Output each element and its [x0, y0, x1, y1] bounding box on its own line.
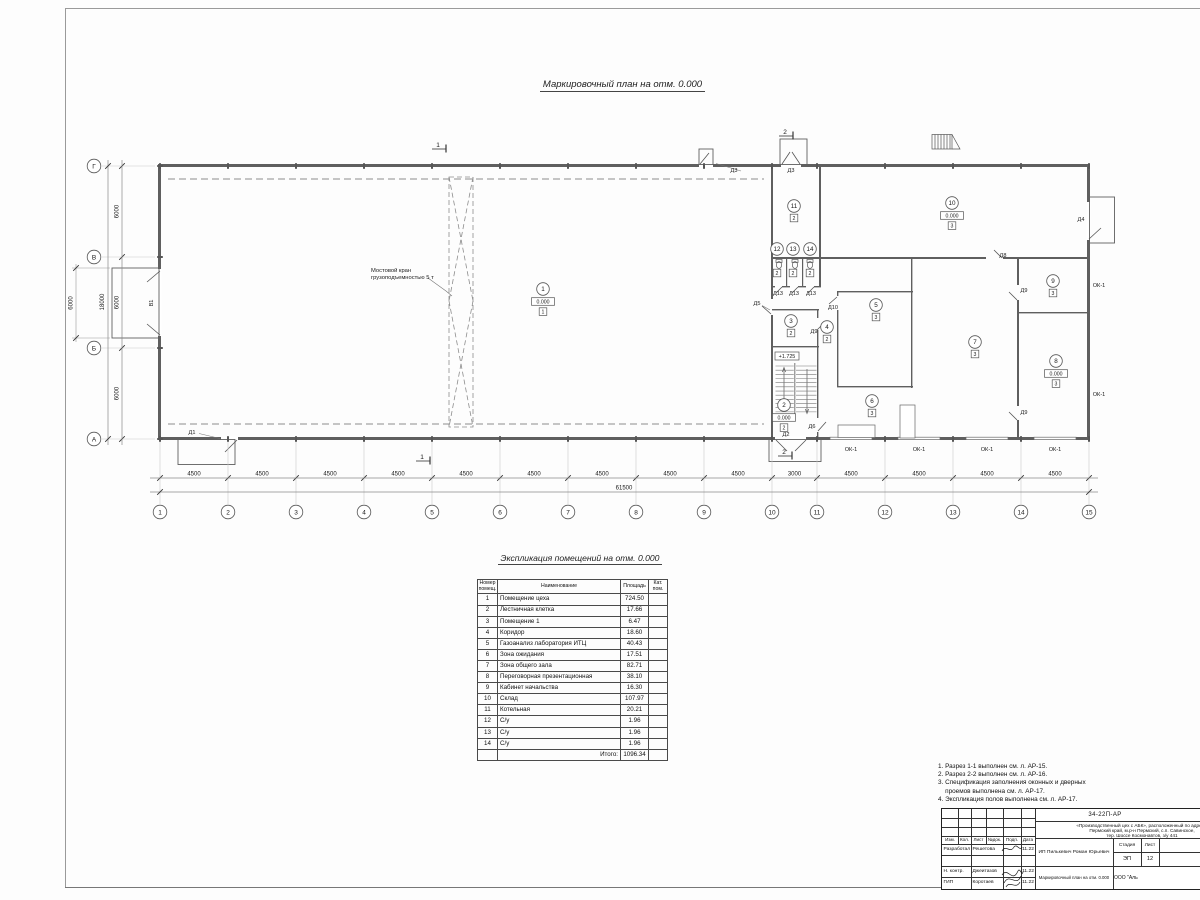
floor-type-number: 1: [542, 310, 545, 316]
opening-label: ОК-1: [1093, 283, 1106, 289]
room-name-cell: Лестничная клетка: [498, 605, 621, 616]
axis-letter: Б: [92, 345, 96, 352]
room-cat-cell: [649, 705, 668, 716]
floor-type-number: 2: [809, 271, 812, 277]
opening-label: Д6: [809, 424, 816, 430]
room-marker: 73: [969, 336, 982, 358]
dimension-value: 4500: [595, 472, 609, 478]
room-marker: 63: [866, 395, 879, 417]
column-mark: [227, 436, 229, 442]
room-cat-cell: [649, 672, 668, 683]
opening-label: Д4: [1078, 217, 1085, 223]
column-mark: [567, 436, 569, 442]
opening-label: Д3: [731, 168, 738, 174]
opening-label: Д10: [828, 305, 838, 311]
room-number-cell: 14: [478, 738, 498, 749]
tb-role-developer: Разработал: [944, 847, 971, 852]
floor-type-number: 3: [871, 411, 874, 417]
room-number: 6: [870, 398, 874, 405]
column-mark: [771, 163, 773, 169]
dimension-value: 4500: [187, 472, 201, 478]
room-area-cell: 107.97: [621, 694, 649, 705]
floor-type-number: 2: [790, 331, 793, 337]
floor-type-number: 3: [1055, 382, 1058, 388]
tb-sheet-label: Лист: [1141, 843, 1159, 848]
axis-number: 15: [1085, 509, 1093, 516]
explication-row: 6Зона ожидания17.51: [478, 649, 668, 660]
section-number: 1: [436, 142, 440, 149]
column-mark: [431, 436, 433, 442]
room-cat-cell: [649, 683, 668, 694]
room-area-cell: 724.50: [621, 594, 649, 605]
room-number-cell: 2: [478, 605, 498, 616]
room-marker: 53: [870, 299, 883, 321]
tb-stage-value: ЭП: [1113, 856, 1141, 862]
opening-label: Д9: [811, 329, 818, 335]
explication-title-text: Экспликация помещений на отм. 0.000: [498, 553, 663, 565]
col-header-category: Кат. пом.: [649, 580, 668, 594]
room-marker: 93: [1047, 275, 1060, 297]
column-mark: [295, 436, 297, 442]
room-name-cell: Котельная: [498, 705, 621, 716]
explication-row: 9Кабинет начальства16.30: [478, 683, 668, 694]
column-mark: [816, 163, 818, 169]
opening-label: Д5: [754, 301, 761, 307]
floor-type-number: 2: [776, 271, 779, 277]
tb-name-developer: Решетова: [973, 847, 995, 852]
total-label: Итого:: [498, 749, 621, 760]
column-mark: [1088, 163, 1090, 169]
dimension-value: 4500: [391, 472, 405, 478]
room-number: 9: [1051, 278, 1055, 285]
room-number-cell: 10: [478, 694, 498, 705]
column-mark: [884, 163, 886, 169]
opening-label: В1: [149, 300, 155, 307]
axis-number: 6: [498, 509, 502, 516]
floor-type-number: 2: [783, 426, 786, 432]
floor-type-number: 2: [792, 271, 795, 277]
room-number-cell: 12: [478, 716, 498, 727]
room-area-cell: 18.60: [621, 627, 649, 638]
room-name-cell: Зона общего зала: [498, 661, 621, 672]
tb-object-line3: тер. Шоссе Космонавтов, з/у 441: [1037, 833, 1200, 838]
room-marker: 80.0003: [1045, 355, 1068, 388]
column-mark: [431, 163, 433, 169]
tb-stage-label: Стадия: [1113, 843, 1141, 848]
room-marker: 10.0001: [532, 283, 555, 316]
column-mark: [884, 436, 886, 442]
opening-label: ОК-1: [981, 447, 994, 453]
column-mark: [635, 436, 637, 442]
axis-letter: А: [92, 436, 97, 443]
room-number-cell: 8: [478, 672, 498, 683]
column-mark: [635, 163, 637, 169]
room-number-cell: 3: [478, 616, 498, 627]
col-header-area: Площадь: [621, 580, 649, 594]
notes-list: 1. Разрез 1-1 выполнен см. л. АР-15.2. Р…: [938, 763, 1200, 804]
note-line: 4. Экспликация полов выполнена см. л. АР…: [938, 796, 1200, 804]
room-marker: 132: [787, 243, 800, 277]
explication-row: 2Лестничная клетка17.66: [478, 605, 668, 616]
tb-doc-number: 34-22П-АР: [1035, 812, 1175, 818]
tb-company: ООО "Аль: [1114, 876, 1138, 881]
ramp-hatch: [932, 135, 960, 150]
room-cat-cell: [649, 727, 668, 738]
column-mark: [499, 163, 501, 169]
tb-role-gip: ГИП: [944, 880, 954, 885]
room-number-cell: 7: [478, 661, 498, 672]
col-header-number: Номер помещ.: [478, 580, 498, 594]
room-name-cell: Переговорная презентационная: [498, 672, 621, 683]
explication-table: Номер помещ. Наименование Площадь Кат. п…: [477, 579, 668, 761]
room-area-cell: 82.71: [621, 661, 649, 672]
axis-number: 3: [294, 509, 298, 516]
opening-label: Д13: [806, 291, 816, 297]
tb-col-izm: Изм.: [942, 838, 958, 843]
explication-row: 11Котельная20.21: [478, 705, 668, 716]
column-mark: [952, 163, 954, 169]
room-number-cell: 13: [478, 727, 498, 738]
col-header-name: Наименование: [498, 580, 621, 594]
room-cat-cell: [649, 638, 668, 649]
room-area-cell: 1.96: [621, 727, 649, 738]
explication-row: 8Переговорная презентационная38.10: [478, 672, 668, 683]
total-empty-cell: [478, 749, 498, 760]
room-area-cell: 40.43: [621, 638, 649, 649]
crane-note-line2: грузоподъемностью 5 т: [371, 275, 434, 281]
room-cat-cell: [649, 616, 668, 627]
floor-type-number: 3: [951, 224, 954, 230]
column-mark: [157, 256, 163, 258]
dimension-value: 4500: [459, 472, 473, 478]
opening-label: ОК-1: [845, 447, 858, 453]
explication-title: Экспликация помещений на отм. 0.000: [462, 553, 698, 565]
room-name-cell: Кабинет начальства: [498, 683, 621, 694]
gate-dimension-value: 6000: [69, 296, 75, 310]
room-name-cell: Склад: [498, 694, 621, 705]
explication-row: 3Помещение 16.47: [478, 616, 668, 627]
note-line: 2. Разрез 2-2 выполнен см. л. АР-16.: [938, 771, 1200, 779]
room-number-cell: 4: [478, 627, 498, 638]
axis-number: 2: [226, 509, 230, 516]
column-mark: [771, 436, 773, 442]
room-name-cell: Газоанализ лаборатория ИТЦ: [498, 638, 621, 649]
door-leaves: [147, 152, 1101, 452]
room-marker: 32: [785, 315, 798, 337]
axis-letter: В: [92, 254, 96, 261]
tb-name-gip: Коротаев: [973, 880, 994, 885]
overall-dimension-value: 18000: [100, 293, 106, 310]
room-number: 4: [825, 324, 829, 331]
column-mark: [1020, 436, 1022, 442]
interior-walls: [771, 166, 1089, 439]
floor-type-number: 3: [974, 352, 977, 358]
explication-row: 10Склад107.97: [478, 694, 668, 705]
signature-strokes: [1000, 843, 1024, 889]
axis-number: 12: [881, 509, 889, 516]
room-name-cell: Помещение цеха: [498, 594, 621, 605]
room-elevation: 0.000: [537, 300, 550, 306]
dimension-value: 4500: [663, 472, 677, 478]
opening-label: Д9: [1021, 288, 1028, 294]
total-value: 1096.34: [621, 749, 649, 760]
room-cat-cell: [649, 716, 668, 727]
opening-label: Д1: [189, 430, 196, 436]
explication-header-row: Номер помещ. Наименование Площадь Кат. п…: [478, 580, 668, 594]
tb-drawing-name: Маркировочный план на отм. 0.000: [1036, 876, 1113, 881]
room-area-cell: 17.51: [621, 649, 649, 660]
dimension-value: 3000: [788, 472, 802, 478]
leader-lines: [199, 164, 770, 439]
room-name-cell: Коридор: [498, 627, 621, 638]
room-name-cell: Зона ожидания: [498, 649, 621, 660]
explication-row: 14С/у1.96: [478, 738, 668, 749]
explication-row: 13С/у1.96: [478, 727, 668, 738]
room-number-cell: 6: [478, 649, 498, 660]
room-number-cell: 9: [478, 683, 498, 694]
column-mark: [816, 436, 818, 442]
column-mark: [567, 163, 569, 169]
bottom-axes-dimensions: 4500450045004500450045004500450045003000…: [150, 442, 1098, 519]
opening-label: ОК-1: [913, 447, 926, 453]
room-cat-cell: [649, 661, 668, 672]
room-number: 12: [773, 246, 781, 253]
dimension-value: 6000: [115, 386, 121, 400]
axis-number: 8: [634, 509, 638, 516]
explication-row: 4Коридор18.60: [478, 627, 668, 638]
column-mark: [1020, 163, 1022, 169]
tb-col-kol: Кол.: [958, 838, 971, 843]
opening-label: Д8: [1000, 253, 1007, 259]
column-mark: [157, 438, 163, 440]
total-cat-cell: [649, 749, 668, 760]
room-cat-cell: [649, 594, 668, 605]
column-mark: [1088, 436, 1090, 442]
room-cat-cell: [649, 605, 668, 616]
crane-note-line1: Мостовой кран: [371, 267, 411, 274]
column-mark: [499, 436, 501, 442]
section-number: 2: [782, 449, 786, 456]
dimension-value: 4500: [912, 472, 926, 478]
opening-label: ОК-1: [1093, 392, 1106, 398]
room-cat-cell: [649, 738, 668, 749]
explication-row: 7Зона общего зала82.71: [478, 661, 668, 672]
elevation-value: +1.725: [779, 354, 796, 360]
room-name-cell: С/у: [498, 727, 621, 738]
room-name-cell: Помещение 1: [498, 616, 621, 627]
dimension-value: 4500: [731, 472, 745, 478]
room-cat-cell: [649, 649, 668, 660]
dimension-value: 4500: [527, 472, 541, 478]
crane-rails: [168, 179, 764, 424]
floor-plan: Мостовой кран грузоподъемностью 5 т +1.7…: [0, 0, 1200, 560]
axis-number: 4: [362, 509, 366, 516]
room-elevation: 0.000: [1050, 372, 1063, 378]
room-name-cell: С/у: [498, 738, 621, 749]
section-number: 2: [783, 129, 787, 136]
dimension-value: 4500: [980, 472, 994, 478]
explication-total-row: Итого: 1096.34: [478, 749, 668, 760]
column-mark: [703, 163, 705, 169]
axis-number: 14: [1017, 509, 1025, 516]
room-marker: 42: [821, 321, 834, 343]
room-number: 14: [806, 246, 814, 253]
dimension-value: 4500: [255, 472, 269, 478]
column-mark: [157, 347, 163, 349]
column-mark: [157, 165, 163, 167]
axis-letter: Г: [92, 163, 96, 170]
room-number: 3: [789, 318, 793, 325]
axis-number: 7: [566, 509, 570, 516]
tb-object-line1: «Производственный цех с АБК», расположен…: [1037, 823, 1200, 828]
drawing-sheet: { "plan_title": "Маркировочный план на о…: [0, 0, 1200, 900]
explication-row: 5Газоанализ лаборатория ИТЦ40.43: [478, 638, 668, 649]
crane-note: Мостовой кран грузоподъемностью 5 т: [371, 267, 434, 281]
axis-number: 9: [702, 509, 706, 516]
section-number: 1: [420, 454, 424, 461]
room-number: 1: [541, 286, 545, 293]
dimension-value: 4500: [323, 472, 337, 478]
room-elevation: 0.000: [778, 416, 791, 422]
stair-elevation-mark: +1.725: [775, 352, 799, 360]
room-marker: 100.0003: [941, 197, 964, 230]
room-name-cell: С/у: [498, 716, 621, 727]
note-line: 1. Разрез 1-1 выполнен см. л. АР-15.: [938, 763, 1200, 771]
room-number: 7: [973, 339, 977, 346]
tb-col-list: Лист: [971, 838, 986, 843]
floor-type-number: 3: [875, 315, 878, 321]
opening-label: Д13: [789, 291, 799, 297]
room-marker: 112: [788, 200, 801, 222]
explication-row: 1Помещение цеха724.50: [478, 594, 668, 605]
column-mark: [952, 436, 954, 442]
dimension-value: 4500: [1048, 472, 1062, 478]
room-number: 5: [874, 302, 878, 309]
room-area-cell: 1.96: [621, 738, 649, 749]
room-marker: 142: [804, 243, 817, 277]
room-number-cell: 1: [478, 594, 498, 605]
room-area-cell: 1.96: [621, 716, 649, 727]
column-mark: [295, 163, 297, 169]
room-elevation: 0.000: [946, 214, 959, 220]
floor-type-number: 3: [1052, 291, 1055, 297]
room-area-cell: 20.21: [621, 705, 649, 716]
axis-number: 1: [158, 509, 162, 516]
tb-role-ncontrol: Н. контр.: [944, 869, 964, 874]
axis-number: 13: [949, 509, 957, 516]
opening-label: Д9: [1021, 410, 1028, 416]
opening-label: Д2: [783, 432, 790, 438]
title-block: Изм. Кол. Лист №док. Подп. Дата Разработ…: [941, 808, 1200, 890]
room-number-cell: 5: [478, 638, 498, 649]
axis-number: 10: [768, 509, 776, 516]
tb-client: ИП Пилькевич Роман Юрьевич: [1036, 850, 1112, 855]
opening-label: Д13: [773, 291, 783, 297]
column-mark: [363, 163, 365, 169]
axis-number: 5: [430, 509, 434, 516]
note-line: проемов выполнена см. л. АР-17.: [938, 788, 1200, 796]
crane-column: [449, 177, 473, 427]
room-number: 2: [782, 402, 786, 409]
floor-type-number: 2: [826, 337, 829, 343]
dimension-value: 6000: [115, 204, 121, 218]
annex-outlines: [112, 139, 1115, 465]
opening-label: ОК-1: [1049, 447, 1062, 453]
opening-label: Д3: [788, 168, 795, 174]
room-cat-cell: [649, 694, 668, 705]
opening-labels: В1Д1Д2Д3Д3Д4Д5Д6Д8Д9Д9Д9Д10Д13Д13Д13ОК-1…: [149, 168, 1105, 453]
axis-number: 11: [814, 509, 821, 516]
note-line: 3. Спецификация заполнения оконных и две…: [938, 779, 1200, 787]
floor-type-number: 2: [793, 216, 796, 222]
explication-row: 12С/у1.96: [478, 716, 668, 727]
room-number: 10: [948, 200, 956, 207]
room-number: 8: [1054, 358, 1058, 365]
room-area-cell: 38.10: [621, 672, 649, 683]
room-area-cell: 17.66: [621, 605, 649, 616]
room-number: 11: [791, 203, 798, 210]
room-markers: 10.000120.0002324253637380.000393100.000…: [532, 197, 1068, 432]
dimension-value: 6000: [115, 295, 121, 309]
dimension-value: 4500: [844, 472, 858, 478]
room-area-cell: 16.30: [621, 683, 649, 694]
column-mark: [363, 436, 365, 442]
room-number: 13: [789, 246, 797, 253]
room-cat-cell: [649, 627, 668, 638]
room-number-cell: 11: [478, 705, 498, 716]
equipment-outlines: [838, 405, 915, 438]
wc-fixtures: [776, 260, 813, 269]
room-area-cell: 6.47: [621, 616, 649, 627]
tb-name-ncontrol: Джеитазов: [973, 869, 997, 874]
tb-sheet-value: 12: [1141, 856, 1159, 862]
column-mark: [227, 163, 229, 169]
overall-dimension-value: 61500: [616, 486, 633, 492]
column-mark: [703, 436, 705, 442]
